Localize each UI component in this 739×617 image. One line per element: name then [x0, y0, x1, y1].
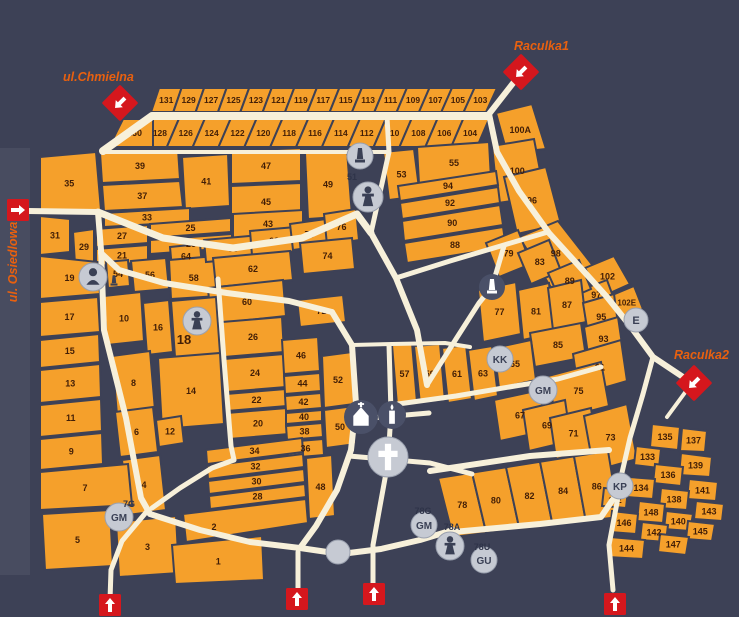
section-label-45: 45: [261, 197, 271, 207]
section-label-120: 120: [256, 128, 270, 138]
section-label-146: 146: [616, 518, 631, 528]
section-label-11: 11: [66, 413, 76, 423]
section-label-123: 123: [249, 95, 263, 105]
south-gate-4-marker[interactable]: [604, 593, 626, 615]
sublabel-78U: 78U: [474, 542, 491, 552]
section-label-125: 125: [226, 95, 240, 105]
section-label-85: 85: [553, 340, 563, 350]
section-label-40: 40: [299, 412, 309, 422]
south-gate-1-marker[interactable]: [99, 594, 121, 616]
section-label-121: 121: [271, 95, 285, 105]
section-label-5: 5: [75, 535, 80, 545]
section-label-86: 86: [592, 481, 602, 491]
section-label-8: 8: [131, 378, 136, 388]
gm-75-badge[interactable]: GM: [529, 376, 557, 404]
sublabel-51: 51: [347, 172, 357, 182]
section-label-49: 49: [323, 180, 333, 190]
section-label-137: 137: [686, 436, 701, 446]
section-label-77: 77: [494, 307, 504, 317]
section-label-18: 18: [177, 332, 191, 347]
section-label-28: 28: [252, 492, 262, 502]
section-label-53: 53: [396, 169, 406, 179]
section-label-55: 55: [449, 158, 459, 168]
section-label-108: 108: [411, 128, 425, 138]
cemetery-map-page: Cmentarz Komunalny przy ulicy Wrocławski…: [0, 0, 739, 617]
section-label-116: 116: [308, 128, 322, 138]
section-label-50: 50: [335, 422, 345, 432]
section-label-134: 134: [633, 483, 648, 493]
section-label-24: 24: [250, 368, 260, 378]
section-label-81: 81: [531, 307, 541, 317]
section-label-33: 33: [142, 213, 152, 223]
section-label-83: 83: [535, 257, 545, 267]
section-label-52: 52: [333, 375, 343, 385]
section-label-62: 62: [248, 264, 258, 274]
section-label-41: 41: [201, 177, 211, 187]
osiedlowa-entrance-marker[interactable]: [7, 199, 29, 221]
angel-statue-18-icon[interactable]: [183, 307, 211, 335]
svg-text:KP: KP: [613, 482, 627, 493]
section-label-27: 27: [117, 231, 127, 241]
section-label-3: 3: [145, 542, 150, 552]
section-label-16: 16: [153, 323, 163, 333]
monument-79-icon[interactable]: [479, 274, 505, 300]
section-label-63: 63: [478, 368, 488, 378]
section-label-36: 36: [300, 444, 310, 454]
section-label-93: 93: [598, 334, 608, 344]
road-path: [28, 211, 98, 212]
section-label-111: 111: [384, 95, 398, 105]
section-label-73: 73: [605, 433, 615, 443]
sublabel-78G: 78G: [414, 506, 431, 516]
section-label-38: 38: [299, 427, 309, 437]
section-label-43: 43: [263, 219, 273, 229]
section-label-106: 106: [437, 128, 451, 138]
section-label-61: 61: [452, 369, 462, 379]
section-label-94: 94: [443, 181, 453, 191]
street-label-raculka1: Raculka1: [514, 39, 569, 53]
section-label-112: 112: [360, 128, 374, 138]
section-label-92: 92: [445, 198, 455, 208]
main-cross-icon[interactable]: [368, 437, 408, 477]
monument-51-icon[interactable]: [347, 143, 373, 169]
section-label-46: 46: [296, 351, 306, 361]
kp-badge[interactable]: KP: [607, 473, 633, 499]
section-label-13: 13: [65, 379, 75, 389]
chapel-icon[interactable]: [344, 400, 378, 434]
section-label-133: 133: [640, 452, 655, 462]
section-label-129: 129: [182, 95, 196, 105]
street-label-osiedlowa: ul. Osiedlowa: [6, 222, 20, 303]
section-label-127: 127: [204, 95, 218, 105]
section-label-143: 143: [701, 506, 716, 516]
svg-text:GM: GM: [535, 386, 551, 397]
section-label-64: 64: [181, 252, 191, 262]
section-label-78: 78: [457, 500, 467, 510]
section-label-139: 139: [688, 461, 703, 471]
section-label-114: 114: [334, 128, 348, 138]
section-label-39: 39: [135, 161, 145, 171]
section-label-135: 135: [657, 432, 672, 442]
section-label-84: 84: [558, 486, 568, 496]
section-label-74: 74: [322, 251, 332, 261]
section-label-44: 44: [297, 379, 307, 389]
section-label-75: 75: [573, 386, 583, 396]
section-label-12: 12: [165, 427, 175, 437]
section-label-142: 142: [646, 527, 661, 537]
section-label-67: 67: [515, 411, 525, 421]
section-label-90: 90: [447, 218, 457, 228]
candle-icon[interactable]: [378, 401, 406, 429]
section-label-17: 17: [64, 312, 74, 322]
section-label-102: 102: [600, 271, 615, 281]
section-label-102E: 102E: [617, 298, 636, 307]
section-label-113: 113: [361, 95, 375, 105]
section-label-95: 95: [596, 312, 606, 322]
section-label-10: 10: [119, 314, 129, 324]
section-label-69: 69: [542, 421, 552, 431]
section-label-107: 107: [428, 95, 442, 105]
kk-badge[interactable]: KK: [487, 346, 513, 372]
bust-19-icon[interactable]: [79, 263, 107, 291]
section-label-128: 128: [153, 128, 167, 138]
section-label-6: 6: [134, 427, 139, 437]
svg-text:E: E: [632, 315, 639, 327]
section-label-119: 119: [294, 95, 308, 105]
section-label-136: 136: [660, 470, 675, 480]
section-label-37: 37: [137, 191, 147, 201]
section-label-109: 109: [406, 95, 420, 105]
section-label-31: 31: [50, 231, 60, 241]
section-label-98: 98: [551, 249, 561, 259]
section-label-88: 88: [450, 240, 460, 250]
section-label-19: 19: [64, 273, 74, 283]
section-label-87: 87: [562, 300, 572, 310]
section-label-71: 71: [568, 429, 578, 439]
section-label-34: 34: [249, 446, 259, 456]
section-label-57: 57: [399, 369, 409, 379]
section-label-117: 117: [316, 95, 330, 105]
section-label-145: 145: [693, 526, 708, 536]
section-label-47: 47: [261, 161, 271, 171]
section-label-30: 30: [251, 477, 261, 487]
sublabel-7G: 7G: [123, 499, 135, 509]
section-label-25: 25: [185, 223, 195, 233]
plain-circle-icon[interactable]: [326, 540, 350, 564]
section-label-103: 103: [473, 95, 487, 105]
cemetery-map: 1311291271251231211191171151131111091071…: [0, 0, 739, 617]
section-label-122: 122: [230, 128, 244, 138]
south-gate-3-marker[interactable]: [363, 583, 385, 605]
section-label-124: 124: [205, 128, 219, 138]
section-label-58: 58: [189, 273, 199, 283]
svg-text:KK: KK: [493, 355, 508, 366]
svg-text:GU: GU: [477, 556, 492, 567]
section-label-148: 148: [643, 507, 658, 517]
section-label-20: 20: [253, 419, 263, 429]
section-label-21: 21: [117, 251, 127, 261]
south-gate-2-marker[interactable]: [286, 588, 308, 610]
section-label-82: 82: [524, 491, 534, 501]
section-label-104: 104: [463, 128, 477, 138]
section-label-100A: 100A: [509, 125, 531, 135]
section-label-35: 35: [64, 178, 74, 188]
section-label-29: 29: [79, 242, 89, 252]
section-label-105: 105: [451, 95, 465, 105]
dancer-statue-78a-icon[interactable]: [436, 532, 464, 560]
e-badge[interactable]: E: [624, 308, 648, 332]
section-label-22: 22: [251, 395, 261, 405]
svg-text:GM: GM: [416, 521, 432, 532]
section-label-115: 115: [339, 95, 353, 105]
section-label-131: 131: [159, 95, 173, 105]
section-label-138: 138: [666, 494, 681, 504]
statue-51-icon[interactable]: [353, 182, 383, 212]
section-label-141: 141: [695, 485, 710, 495]
section-label-80: 80: [491, 495, 501, 505]
section-label-15: 15: [65, 346, 75, 356]
section-label-89: 89: [565, 276, 575, 286]
section-label-7: 7: [82, 483, 87, 493]
street-label-raculka2: Raculka2: [674, 348, 729, 362]
sublabel-78A: 78A: [444, 522, 461, 532]
section-label-42: 42: [298, 397, 308, 407]
svg-text:GM: GM: [111, 513, 127, 524]
section-label-140: 140: [671, 516, 686, 526]
section-label-9: 9: [69, 447, 74, 457]
section-label-48: 48: [315, 482, 325, 492]
section-label-1: 1: [216, 556, 221, 566]
section-label-14: 14: [186, 386, 196, 396]
section-label-32: 32: [250, 462, 260, 472]
section-label-126: 126: [179, 128, 193, 138]
section-label-26: 26: [248, 332, 258, 342]
section-label-118: 118: [282, 128, 296, 138]
street-label-chmielna: ul.Chmielna: [63, 70, 134, 84]
section-label-144: 144: [619, 543, 634, 553]
section-label-147: 147: [666, 540, 681, 550]
